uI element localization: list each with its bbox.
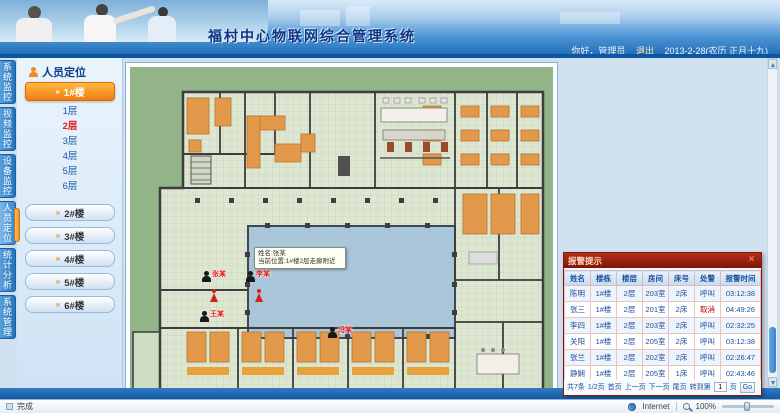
vertical-nav-tab-label: 统计分析 <box>1 250 14 290</box>
floor-list-item[interactable]: 3层 <box>17 134 123 149</box>
alarm-table-body: 陈明 1#楼 2层 203室 2床 呼叫 03:12:38 张三 1#楼 2层 … <box>565 286 761 382</box>
building-button[interactable]: » 3#楼 <box>25 227 115 244</box>
alarm-table-row[interactable]: 陈明 1#楼 2层 203室 2床 呼叫 03:12:38 <box>565 286 761 302</box>
arrow-down-icon <box>771 381 775 385</box>
building-button-active[interactable]: » 1#楼 <box>25 82 115 101</box>
scrollbar-thumb[interactable] <box>769 327 776 373</box>
chevron-right-icon: » <box>56 254 60 263</box>
photo-person-body <box>84 15 116 42</box>
pagination-first[interactable]: 首页 <box>608 382 622 392</box>
floor-list-item[interactable]: 4层 <box>17 149 123 164</box>
vertical-nav-tab[interactable]: 设备监控 <box>0 154 16 198</box>
tooltip-line2: 当前位置:1#楼2层走廊附近 <box>258 258 342 266</box>
cell-name: 张三 <box>565 302 591 318</box>
cell-building: 1#楼 <box>591 334 617 350</box>
chevron-right-icon: » <box>55 87 59 96</box>
building-button-label: 3#楼 <box>64 229 84 243</box>
cell-name: 李四 <box>565 318 591 334</box>
close-icon[interactable]: × <box>746 255 757 266</box>
alarm-column-header: 床号 <box>669 271 695 286</box>
cell-building: 1#楼 <box>591 302 617 318</box>
zoom-level: 100% <box>696 402 716 411</box>
cell-floor: 2层 <box>617 318 643 334</box>
scrollbar-down-button[interactable] <box>768 377 777 387</box>
cell-floor: 2层 <box>617 302 643 318</box>
cell-room: 202室 <box>643 350 669 366</box>
floor-list-item-label: 2层 <box>63 121 78 132</box>
person-tooltip: 姓名:张某 当前位置:1#楼2层走廊附近 <box>254 247 346 269</box>
building-button[interactable]: » 2#楼 <box>25 204 115 221</box>
cell-room: 203室 <box>643 286 669 302</box>
arrow-up-icon <box>771 63 775 67</box>
alarm-column-header: 报警时间 <box>721 271 761 286</box>
building-button-label: 2#楼 <box>64 206 84 220</box>
building-button-label: 1#楼 <box>64 84 85 99</box>
cell-bed: 2床 <box>669 350 695 366</box>
chevron-right-icon: » <box>56 300 60 309</box>
cell-name: 陈明 <box>565 286 591 302</box>
cell-bed: 2床 <box>669 334 695 350</box>
cell-action: 取消 <box>695 302 721 318</box>
pagination-bar: 共7条 1/2页 首页 上一页 下一页 尾页 转到第 页 Go <box>564 380 761 394</box>
pagination-prev[interactable]: 上一页 <box>625 382 646 392</box>
pagination-goto-prefix: 转到第 <box>690 382 711 392</box>
vertical-nav-tab-label: 人员定位 <box>1 203 14 243</box>
building-button[interactable]: » 6#楼 <box>25 296 115 313</box>
alarm-title: 报警提示 <box>568 255 602 267</box>
cell-floor: 2层 <box>617 334 643 350</box>
alarm-column-header: 处警 <box>695 271 721 286</box>
sidebar-panel-title-label: 人员定位 <box>42 64 86 80</box>
floor-list: 1层 2层 3层 4层 5层 6层 <box>17 104 123 194</box>
cell-time: 03:12:38 <box>721 286 761 302</box>
header: 福村中心物联网综合管理系统 你好，管理员 退出 2013-2-28(农历 正月十… <box>0 0 780 58</box>
skyline-shape <box>346 6 370 26</box>
floor-list-item-label: 3层 <box>63 136 78 147</box>
building-button[interactable]: » 4#楼 <box>25 250 115 267</box>
zoom-slider-thumb[interactable] <box>744 402 750 411</box>
person-bust-icon <box>328 327 337 339</box>
cell-action: 呼叫 <box>695 318 721 334</box>
person-figure-icon <box>210 289 218 302</box>
floor-list-item[interactable]: 2层 <box>17 119 123 134</box>
person-icon <box>29 67 38 77</box>
building-button-label: 4#楼 <box>64 252 84 266</box>
alarm-column-header: 姓名 <box>565 271 591 286</box>
chevron-right-icon: » <box>56 208 60 217</box>
pagination-go-button[interactable]: Go <box>740 382 755 393</box>
cell-action: 呼叫 <box>695 350 721 366</box>
person-marker[interactable]: 王某 <box>200 311 210 325</box>
floorplan-panel: 张某 李某 <box>125 62 558 393</box>
pagination-total: 共7条 <box>567 382 585 392</box>
pagination-next[interactable]: 下一页 <box>649 382 670 392</box>
status-text: 完成 <box>17 401 33 412</box>
floor-list-item[interactable]: 5层 <box>17 164 123 179</box>
alarm-table-row[interactable]: 关阳 1#楼 2层 205室 2床 呼叫 03:12:38 <box>565 334 761 350</box>
person-marker[interactable]: 张某 <box>202 271 212 285</box>
cell-room: 203室 <box>643 318 669 334</box>
globe-icon <box>628 403 636 411</box>
skyline-shape <box>300 10 340 26</box>
status-right-cluster: Internet 100% <box>628 402 774 411</box>
floor-list-item-label: 4层 <box>63 151 78 162</box>
cell-time: 02:32:25 <box>721 318 761 334</box>
scrollbar-up-button[interactable] <box>768 59 777 69</box>
cell-action: 呼叫 <box>695 286 721 302</box>
sidebar-collapse-handle[interactable] <box>14 208 20 242</box>
person-name-label: 张某 <box>212 269 226 279</box>
person-bust-icon <box>200 311 209 323</box>
person-marker[interactable] <box>255 289 265 303</box>
document-icon <box>6 403 13 410</box>
alarm-table-row[interactable]: 李四 1#楼 2层 203室 2床 呼叫 02:32:25 <box>565 318 761 334</box>
cell-room: 201室 <box>643 302 669 318</box>
tooltip-line1: 姓名:张某 <box>258 250 342 258</box>
building-button[interactable]: » 5#楼 <box>25 273 115 290</box>
building-button-label: 6#楼 <box>64 298 84 312</box>
vertical-nav-tab[interactable]: 系统管理 <box>0 295 16 339</box>
sidebar-panel-title: 人员定位 <box>29 64 86 80</box>
vertical-nav-tab-label: 系统监控 <box>1 62 14 102</box>
vertical-nav-tab[interactable]: 系统监控 <box>0 60 16 104</box>
person-marker[interactable]: 冯某 <box>328 327 338 341</box>
photo-person-body <box>16 18 52 42</box>
person-bust-icon <box>246 271 255 283</box>
cell-bed: 2床 <box>669 286 695 302</box>
person-name-label: 王某 <box>210 309 224 319</box>
cell-action: 呼叫 <box>695 334 721 350</box>
pagination-page: 1/2页 <box>588 382 605 392</box>
person-marker-layer: 张某 李某 <box>130 67 553 388</box>
floor-list-item-label: 5层 <box>63 166 78 177</box>
building-button-label: 5#楼 <box>64 275 84 289</box>
vertical-nav-tab-label: 设备监控 <box>1 156 14 196</box>
photo-person-body <box>148 16 176 42</box>
cell-bed: 2床 <box>669 302 695 318</box>
divider <box>676 402 677 411</box>
chevron-right-icon: » <box>56 277 60 286</box>
chevron-right-icon: » <box>56 231 60 240</box>
cell-bed: 2床 <box>669 318 695 334</box>
cell-floor: 2层 <box>617 286 643 302</box>
alarm-table-header-row: 姓名楼栋楼层房间床号处警报警时间 <box>565 271 761 286</box>
alarm-column-header: 房间 <box>643 271 669 286</box>
cell-room: 205室 <box>643 334 669 350</box>
alarm-column-header: 楼层 <box>617 271 643 286</box>
vertical-nav-tab[interactable]: 统计分析 <box>0 248 16 292</box>
skyline-shape <box>560 12 620 24</box>
scrollbar[interactable] <box>767 58 778 388</box>
person-bust-icon <box>202 271 211 283</box>
floor-list-item[interactable]: 1层 <box>17 104 123 119</box>
floor-list-item-label: 1层 <box>63 106 78 117</box>
zone-label: Internet <box>642 402 669 411</box>
magnifier-icon <box>683 403 690 410</box>
cell-time: 02:26:47 <box>721 350 761 366</box>
alarm-popup: 报警提示 × 姓名楼栋楼层房间床号处警报警时间 陈明 1#楼 2层 203室 2… <box>563 252 762 396</box>
status-bar: 完成 Internet 100% <box>0 399 780 413</box>
cell-time: 03:12:38 <box>721 334 761 350</box>
alarm-column-header: 楼栋 <box>591 271 617 286</box>
vertical-nav-tab[interactable]: 视频监控 <box>0 107 16 151</box>
floor-list-item[interactable]: 6层 <box>17 179 123 194</box>
person-name-label: 冯某 <box>338 325 352 335</box>
vertical-nav-tab-label: 系统管理 <box>1 297 14 337</box>
floorplan-viewport[interactable]: 张某 李某 <box>130 67 553 388</box>
floor-list-item-label: 6层 <box>63 181 78 192</box>
zoom-slider[interactable] <box>722 405 774 408</box>
cell-name: 张兰 <box>565 350 591 366</box>
building-list: » 2#楼 » 3#楼 » 4#楼 » 5#楼 <box>17 204 123 319</box>
sidebar: 人员定位 » 1#楼 1层 2层 3层 4层 <box>17 58 123 388</box>
cell-floor: 2层 <box>617 350 643 366</box>
vertical-nav-tab-label: 视频监控 <box>1 109 14 149</box>
cell-building: 1#楼 <box>591 350 617 366</box>
cell-name: 关阳 <box>565 334 591 350</box>
cell-time: 04:49:26 <box>721 302 761 318</box>
app-window: 福村中心物联网综合管理系统 你好，管理员 退出 2013-2-28(农历 正月十… <box>0 0 780 413</box>
page-title: 福村中心物联网综合管理系统 <box>208 26 416 46</box>
pagination-last[interactable]: 尾页 <box>673 382 687 392</box>
pagination-goto-suffix: 页 <box>730 382 737 392</box>
person-name-label: 李某 <box>256 269 270 279</box>
vertical-nav: 系统监控 视频监控 设备监控 人员定位 统计分析 系统管理 <box>0 60 17 342</box>
alarm-table: 姓名楼栋楼层房间床号处警报警时间 陈明 1#楼 2层 203室 2床 呼叫 03… <box>564 270 761 382</box>
alarm-table-row[interactable]: 张三 1#楼 2层 201室 2床 取消 04:49:26 <box>565 302 761 318</box>
alarm-titlebar: 报警提示 × <box>564 253 761 268</box>
cell-building: 1#楼 <box>591 318 617 334</box>
pagination-goto-input[interactable] <box>714 382 727 392</box>
alarm-table-row[interactable]: 张兰 1#楼 2层 202室 2床 呼叫 02:26:47 <box>565 350 761 366</box>
person-marker[interactable] <box>210 289 220 303</box>
person-marker[interactable]: 李某 <box>246 271 256 285</box>
cell-building: 1#楼 <box>591 286 617 302</box>
person-figure-icon <box>255 289 263 302</box>
